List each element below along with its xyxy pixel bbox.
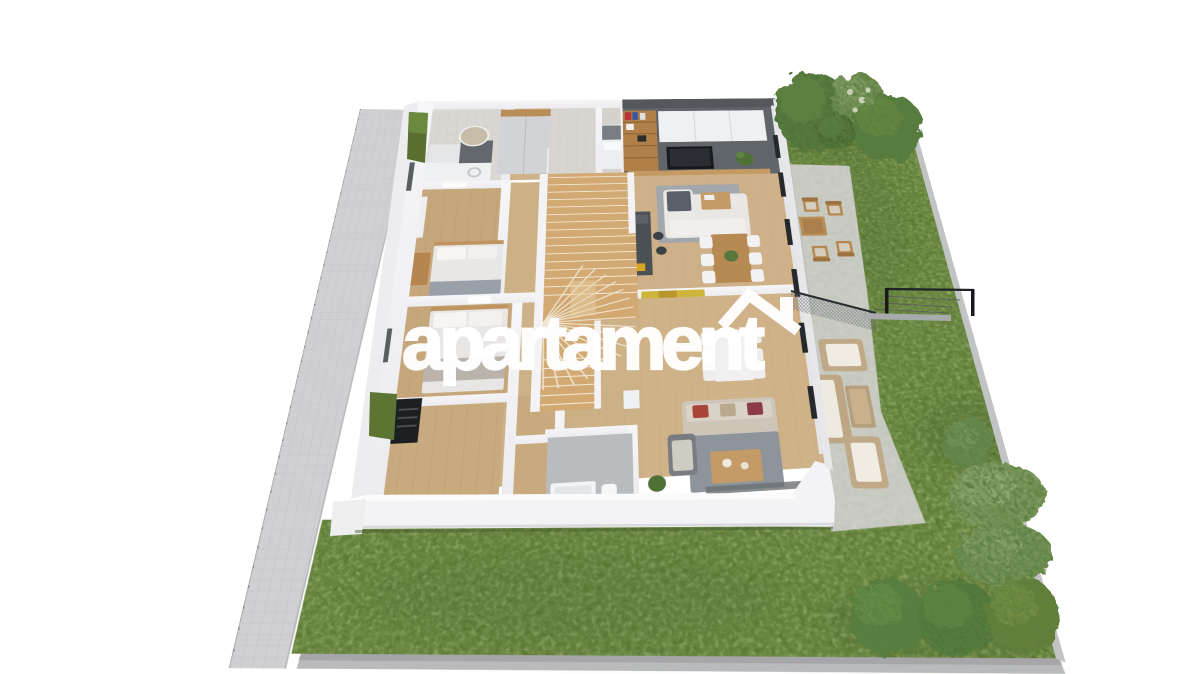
svg-text:apartament: apartament	[402, 301, 765, 386]
